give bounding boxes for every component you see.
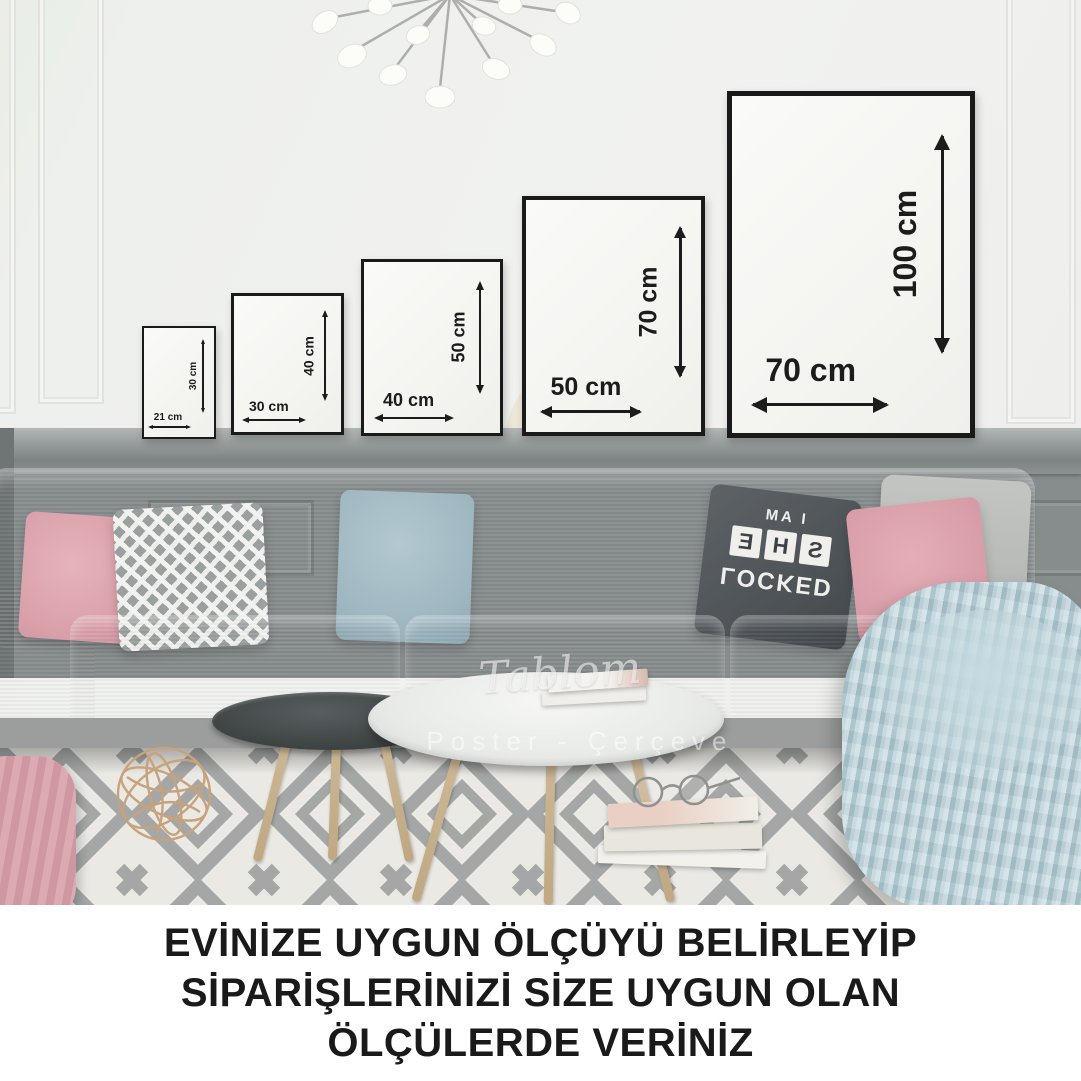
frame-50x70: 70 cm 50 cm xyxy=(522,196,705,436)
frame-50x70-height-label: 70 cm xyxy=(634,267,663,338)
pillow-letter-tiles: S H E xyxy=(729,525,832,567)
vertical-arrow xyxy=(679,228,682,376)
knit-blanket-fold xyxy=(880,610,1081,770)
product-image: 30 cm 21 cm 40 cm 30 cm 50 cm 40 cm 70 c… xyxy=(0,0,1081,1081)
horizontal-arrow xyxy=(376,417,452,419)
frame-40x50-height-label: 50 cm xyxy=(449,312,470,363)
brand-watermark-subtitle: Poster - Çerçeve xyxy=(420,726,740,757)
wall-molding-left xyxy=(38,0,104,404)
frame-21x30-width-label: 21 cm xyxy=(154,412,182,423)
living-room-photo: 30 cm 21 cm 40 cm 30 cm 50 cm 40 cm 70 c… xyxy=(0,0,1081,905)
frame-70x100: 100 cm 70 cm xyxy=(727,91,975,438)
wire-sphere-decor xyxy=(112,742,216,846)
horizontal-arrow xyxy=(244,419,304,421)
tile-letter: H xyxy=(764,529,797,562)
caption-line-1: EVİNİZE UYGUN ÖLÇÜYÜ BELİRLEYİP xyxy=(164,919,917,967)
frame-30x40: 40 cm 30 cm xyxy=(231,293,344,435)
frame-40x50-width-label: 40 cm xyxy=(383,390,434,411)
frame-70x100-height-label: 100 cm xyxy=(887,190,924,299)
tile-letter: S xyxy=(799,534,832,567)
frame-40x50: 50 cm 40 cm xyxy=(361,259,503,436)
tile-letter: E xyxy=(729,525,762,558)
sherlock-print: I AM S H E LOCKED xyxy=(699,483,862,604)
wall-molding-right xyxy=(1006,0,1076,424)
frame-30x40-width-label: 30 cm xyxy=(249,398,289,414)
caption-line-2: SİPARİŞLERİNİZİ SİZE UYGUN OLAN xyxy=(181,969,900,1017)
pink-pouf xyxy=(0,756,76,905)
caption-band: EVİNİZE UYGUN ÖLÇÜYÜ BELİRLEYİP SİPARİŞL… xyxy=(0,905,1081,1081)
vertical-arrow xyxy=(479,283,481,392)
eyeglasses xyxy=(618,770,748,810)
vertical-arrow xyxy=(941,136,944,352)
pillow-text-line2: LOCKED xyxy=(718,560,834,602)
vertical-arrow xyxy=(324,312,326,399)
horizontal-arrow xyxy=(542,410,640,413)
caption-line-3: ÖLÇÜLERDE VERİNİZ xyxy=(327,1019,753,1067)
frame-50x70-width-label: 50 cm xyxy=(551,373,622,402)
horizontal-arrow xyxy=(150,426,189,428)
pillow-text-line1: I AM xyxy=(762,506,807,528)
chandelier xyxy=(300,0,600,115)
wall-molding-far-left xyxy=(0,0,16,414)
horizontal-arrow xyxy=(753,403,886,406)
frame-21x30-height-label: 30 cm xyxy=(188,362,199,390)
frame-70x100-width-label: 70 cm xyxy=(765,352,856,389)
frame-21x30: 30 cm 21 cm xyxy=(142,326,216,439)
vertical-arrow xyxy=(202,341,204,411)
frame-30x40-height-label: 40 cm xyxy=(301,336,317,376)
